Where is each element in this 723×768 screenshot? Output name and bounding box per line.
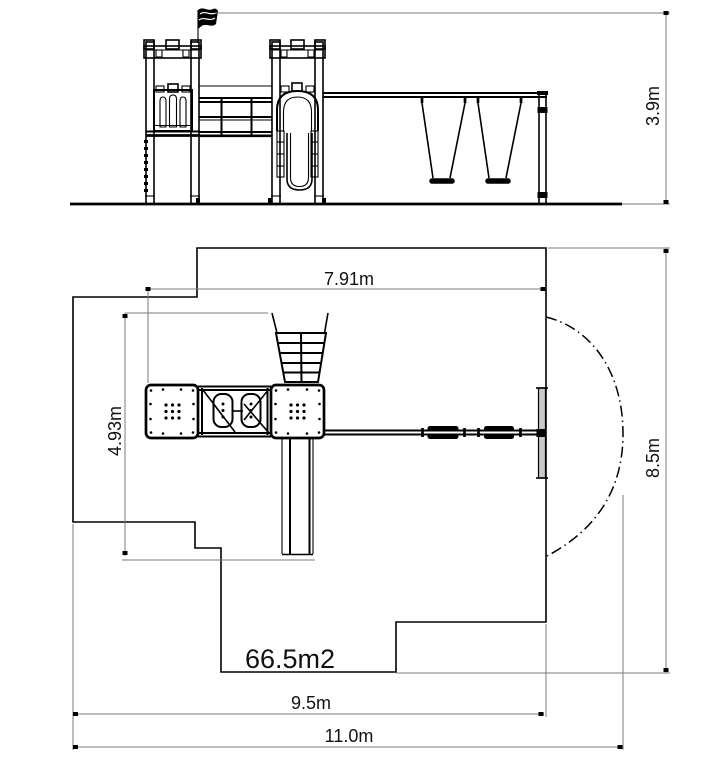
- bridge-plan: [198, 387, 271, 437]
- dimension-label-total-width: 11.0m: [325, 726, 374, 746]
- swing-seat-plan: [428, 426, 459, 432]
- swing-end-post: [537, 91, 548, 204]
- right-tower: [268, 40, 326, 204]
- climbing-ladder: [272, 313, 328, 382]
- dimension-label-bottom-width: 9.5m: [291, 693, 331, 713]
- dimension-bottom-width: 9.5m: [73, 524, 546, 750]
- dimension-right-height: 8.5m: [396, 248, 670, 673]
- dimension-label-right-height: 8.5m: [643, 438, 663, 478]
- plan-view: 7.91m 4.93m 8.5m 66.5m2: [73, 248, 670, 750]
- slide-elevation: [287, 133, 312, 190]
- left-platform: [146, 385, 198, 438]
- swing-set: [323, 91, 548, 204]
- right-platform: [271, 385, 324, 438]
- dimension-top-width: 7.91m: [146, 269, 547, 383]
- area-label: 66.5m2: [245, 644, 335, 674]
- technical-drawing: 3.9m: [0, 0, 723, 768]
- dimension-label-left-depth: 4.93m: [105, 406, 125, 456]
- swing-safety-arc: [546, 317, 623, 556]
- elevation-view: 3.9m: [70, 8, 670, 204]
- left-tower: [144, 40, 201, 204]
- left-tower-panel: [154, 84, 192, 131]
- height-dimension: 3.9m: [215, 11, 670, 204]
- slide-plan: [282, 438, 313, 555]
- dimension-label-top-width: 7.91m: [324, 269, 374, 289]
- dimension-label-height: 3.9m: [643, 86, 663, 126]
- swing-seat-plan: [484, 426, 514, 432]
- bridge: [199, 86, 272, 136]
- swing-beam-plan: [324, 388, 548, 478]
- playground-drawing-svg: 3.9m: [0, 0, 723, 768]
- flag: [198, 8, 218, 43]
